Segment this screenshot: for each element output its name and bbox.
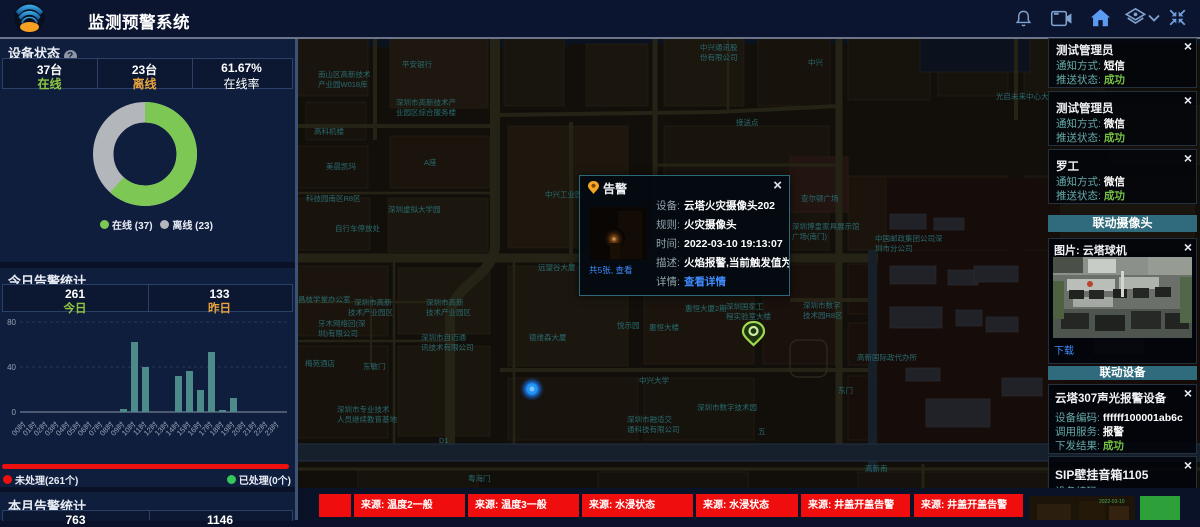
- svg-text:粤海门: 粤海门: [468, 473, 491, 483]
- svg-text:40: 40: [7, 363, 16, 372]
- svg-text:深圳市自迈通: 深圳市自迈通: [421, 332, 466, 342]
- svg-text:圳)有限公司: 圳)有限公司: [318, 328, 358, 338]
- svg-text:深圳市数字: 深圳市数字: [803, 300, 841, 310]
- svg-text:技术园R8区: 技术园R8区: [803, 310, 843, 320]
- svg-text:深圳博皇家具展示馆: 深圳博皇家具展示馆: [792, 221, 860, 231]
- svg-text:深圳市数字技术园: 深圳市数字技术园: [697, 402, 757, 412]
- svg-text:高科机楼: 高科机楼: [314, 126, 344, 136]
- svg-text:程实验室大楼: 程实验室大楼: [726, 311, 771, 321]
- svg-text:五: 五: [758, 427, 766, 436]
- svg-text:0: 0: [12, 408, 17, 417]
- svg-text:D1: D1: [439, 436, 449, 445]
- svg-text:深圳市高新: 深圳市高新: [426, 297, 464, 307]
- svg-text:圳市分公司: 圳市分公司: [875, 243, 913, 253]
- svg-text:深圳虚拟大学园: 深圳虚拟大学园: [388, 204, 441, 214]
- svg-text:惠恒大厦2期: 惠恒大厦2期: [685, 303, 727, 313]
- svg-text:深圳市融适交: 深圳市融适交: [627, 414, 672, 424]
- svg-text:悦示园: 悦示园: [617, 320, 640, 330]
- svg-text:惠恒大楼: 惠恒大楼: [649, 322, 679, 332]
- svg-text:光启未来中心大: 光启未来中心大: [996, 91, 1049, 101]
- svg-text:东门: 东门: [838, 385, 853, 395]
- svg-text:中国邮政集团公司深: 中国邮政集团公司深: [875, 233, 943, 243]
- svg-text:高新国际政代办所: 高新国际政代办所: [857, 352, 917, 362]
- svg-text:80: 80: [7, 318, 16, 327]
- svg-text:23时: 23时: [262, 419, 281, 437]
- svg-text:东敏门: 东敏门: [363, 361, 386, 371]
- svg-text:接送点: 接送点: [736, 117, 759, 127]
- svg-text:广场(南门): 广场(南门): [792, 231, 827, 241]
- svg-text:人员继续教育基地: 人员继续教育基地: [337, 414, 397, 424]
- svg-text:高新南: 高新南: [865, 463, 888, 473]
- svg-text:科技园南区R8区: 科技园南区R8区: [306, 193, 361, 203]
- svg-text:深圳市高新: 深圳市高新: [354, 297, 392, 307]
- svg-text:德维森大厦: 德维森大厦: [529, 332, 567, 342]
- svg-text:中兴: 中兴: [808, 57, 823, 67]
- svg-text:通科技有限公司: 通科技有限公司: [627, 424, 680, 434]
- svg-text:技术产业园区: 技术产业园区: [348, 307, 393, 317]
- svg-text:讯技术有限公司: 讯技术有限公司: [421, 342, 474, 352]
- svg-text:产业园W018库: 产业园W018库: [318, 79, 368, 89]
- svg-text:深圳市专业技术: 深圳市专业技术: [337, 404, 390, 414]
- svg-text:2022-03-10: 2022-03-10: [1099, 499, 1125, 505]
- svg-text:技术产业园区: 技术产业园区: [426, 307, 471, 317]
- svg-text:中兴工业园: 中兴工业园: [545, 189, 583, 199]
- svg-text:中兴通讯股: 中兴通讯股: [700, 42, 738, 52]
- svg-text:梅苑酒店: 梅苑酒店: [305, 358, 335, 368]
- svg-text:份有限公司: 份有限公司: [700, 52, 738, 62]
- svg-text:牙木网络回(深: 牙木网络回(深: [318, 318, 366, 328]
- svg-text:平安银行: 平安银行: [402, 59, 432, 69]
- svg-text:A座: A座: [424, 157, 437, 167]
- svg-text:深圳市高新技术产: 深圳市高新技术产: [396, 97, 456, 107]
- svg-text:南山区高新技术: 南山区高新技术: [318, 69, 371, 79]
- svg-text:查尔顿广场: 查尔顿广场: [801, 193, 839, 203]
- svg-text:中兴大学: 中兴大学: [639, 375, 669, 385]
- svg-text:深圳国家工: 深圳国家工: [726, 301, 764, 311]
- svg-text:美晨凯玛: 美晨凯玛: [326, 161, 356, 171]
- svg-text:昌枝学堂办公室: 昌枝学堂办公室: [298, 294, 351, 304]
- svg-text:自行车停放处: 自行车停放处: [335, 223, 380, 233]
- svg-text:远望谷大厦: 远望谷大厦: [538, 262, 576, 272]
- svg-text:业园区综合服务楼: 业园区综合服务楼: [396, 107, 456, 117]
